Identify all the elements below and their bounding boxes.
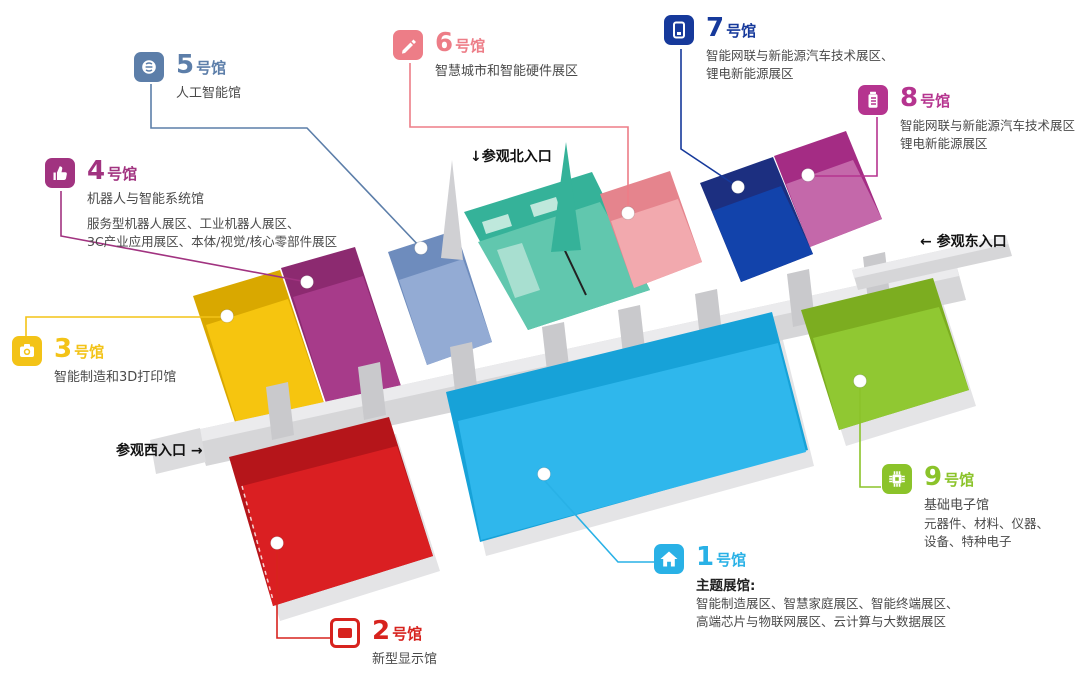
hall-7-label: 7号馆 智能网联与新能源汽车技术展区、 锂电新能源展区 [664, 15, 894, 83]
hall-7-title: 7号馆 [706, 15, 894, 41]
entrance-north-label: ↓参观北入口 [470, 146, 552, 166]
brain-icon [134, 52, 164, 82]
hall-7-desc: 智能网联与新能源汽车技术展区、 [706, 47, 894, 65]
hall-4-label: 4号馆 机器人与智能系统馆 服务型机器人展区、工业机器人展区、 3C产业应用展区… [45, 158, 337, 251]
hall-4-marker [301, 276, 314, 289]
hall-2-label: 2号馆 新型显示馆 [330, 618, 437, 669]
camera-icon [12, 336, 42, 366]
hall-8-marker [802, 169, 815, 182]
battery-icon [858, 85, 888, 115]
hall-9-desc: 设备、特种电子 [924, 533, 1049, 551]
hall-7-marker [732, 181, 745, 194]
hall-5-label: 5号馆 人工智能馆 [134, 52, 241, 103]
hall-9-desc: 元器件、材料、仪器、 [924, 515, 1049, 533]
hall-3-title: 3号馆 [54, 336, 176, 362]
hall-6-marker [622, 207, 635, 220]
hall-9-name: 基础电子馆 [924, 497, 1049, 515]
hall-5-title: 5号馆 [176, 52, 241, 78]
hall-3-label: 3号馆 智能制造和3D打印馆 [12, 336, 176, 387]
hall-9-marker [854, 375, 867, 388]
hall-9-label: 9号馆 基础电子馆 元器件、材料、仪器、 设备、特种电子 [882, 464, 1049, 551]
expo-floor-map-page: ↓参观北入口 ← 参观东入口 参观西入口 → 5号馆 人工智能馆 6号馆 智慧城… [0, 0, 1080, 696]
entrance-east-label: ← 参观东入口 [920, 231, 1007, 251]
device-icon [664, 15, 694, 45]
hall-7-desc: 锂电新能源展区 [706, 65, 894, 83]
chip-icon [882, 464, 912, 494]
hall-1-name: 主题展馆: [696, 577, 959, 595]
hall-8-desc: 智能网联与新能源汽车技术展区 [900, 117, 1075, 135]
hall-1-label: 1号馆 主题展馆: 智能制造展区、智慧家庭展区、智能终端展区、 高端芯片与物联网… [654, 544, 959, 631]
home-icon [654, 544, 684, 574]
thumbs-up-icon [45, 158, 75, 188]
pen-icon [393, 30, 423, 60]
hall-3-marker [221, 310, 234, 323]
hall-2-title: 2号馆 [372, 618, 437, 644]
hall-2-name: 新型显示馆 [372, 651, 437, 669]
hall-5[interactable] [388, 230, 492, 365]
hall-6-name: 智慧城市和智能硬件展区 [435, 63, 578, 81]
hall-8-desc: 锂电新能源展区 [900, 135, 1075, 153]
hall-3-name: 智能制造和3D打印馆 [54, 369, 176, 387]
hall-8-label: 8号馆 智能网联与新能源汽车技术展区 锂电新能源展区 [858, 85, 1075, 153]
hall-5-name: 人工智能馆 [176, 85, 241, 103]
hall-4-name: 机器人与智能系统馆 [87, 191, 337, 209]
entrance-west-label: 参观西入口 → [116, 440, 203, 460]
hall-2-marker [271, 537, 284, 550]
hall-6-title: 6号馆 [435, 30, 578, 56]
hall-4-title: 4号馆 [87, 158, 337, 184]
hall-9-title: 9号馆 [924, 464, 1049, 490]
hall-1-desc: 智能制造展区、智慧家庭展区、智能终端展区、 [696, 595, 959, 613]
hall-6-label: 6号馆 智慧城市和智能硬件展区 [393, 30, 578, 81]
hall-5-marker [415, 242, 428, 255]
hall-8-title: 8号馆 [900, 85, 1075, 111]
hall-1-marker [538, 468, 551, 481]
hall-1-desc: 高端芯片与物联网展区、云计算与大数据展区 [696, 613, 959, 631]
display-icon [330, 618, 360, 648]
north-passage-wall-gray [441, 160, 463, 260]
hall-4-desc: 3C产业应用展区、本体/视觉/核心零部件展区 [87, 233, 337, 251]
hall-4-desc: 服务型机器人展区、工业机器人展区、 [87, 215, 337, 233]
